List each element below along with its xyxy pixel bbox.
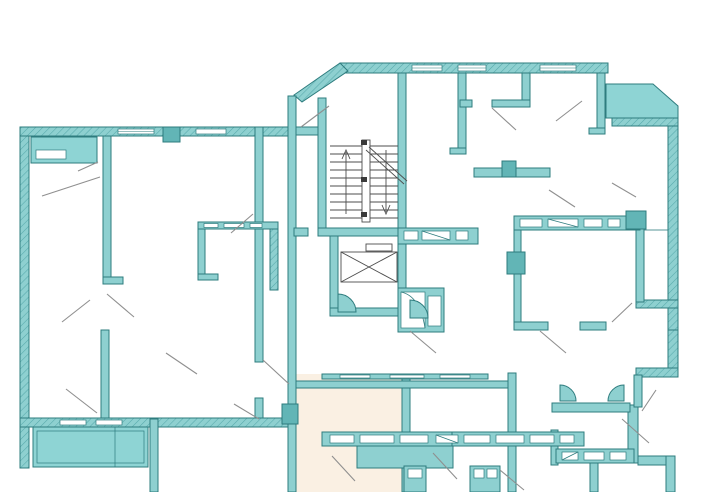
door-swing: [62, 300, 90, 322]
balcony-top-right: [606, 84, 678, 118]
door-swing: [66, 389, 97, 413]
column: [502, 161, 516, 177]
wall-corridor-bottom: [296, 381, 508, 388]
wall-int-left-b: [101, 330, 109, 418]
door-swing: [410, 331, 436, 353]
door-swing: [42, 177, 100, 196]
wall-foot-a: [103, 277, 123, 284]
wall-int-left-a: [103, 136, 111, 284]
wall-int-r2-stub: [460, 100, 472, 107]
wall-stair-left: [318, 98, 326, 230]
door-leaf: [608, 385, 624, 401]
wall-foot-b: [450, 148, 466, 154]
wall-closet-foot: [198, 274, 218, 280]
wall-int-r4: [597, 73, 605, 133]
window-band-top-right: [612, 118, 678, 126]
wall-elevator-left: [330, 236, 338, 316]
wall-int-left-d: [255, 398, 263, 418]
column: [507, 252, 525, 274]
wall-lobby-stub: [294, 228, 308, 236]
wall-exterior-right: [668, 118, 678, 330]
wall-exterior-top-left: [20, 127, 292, 136]
column: [163, 127, 180, 142]
door-swing: [166, 353, 197, 374]
wall-br-vert-b: [666, 456, 675, 492]
balcony-window-slot: [36, 150, 66, 159]
door-swing: [612, 303, 632, 322]
wall-foot-c: [589, 128, 605, 134]
wall-bottom-left-a: [20, 418, 160, 427]
floor-plan-canvas: [0, 0, 711, 492]
door-swing: [492, 108, 516, 130]
wall-int-r1: [522, 73, 530, 103]
door-leaf: [338, 294, 356, 312]
staircase: [330, 140, 407, 222]
balcony-bottom-left: [33, 427, 148, 467]
door-swing: [642, 390, 656, 411]
wall-stair-bottom: [318, 228, 406, 236]
door-swing: [540, 331, 566, 353]
wall-stair-stub: [296, 127, 318, 135]
wall-bottom-vert: [150, 419, 158, 492]
wall-central: [288, 96, 296, 492]
wall-bottom-left-b: [158, 418, 288, 427]
band-core-bottom: [357, 446, 453, 468]
column: [626, 211, 646, 229]
elevator: [341, 244, 397, 282]
floor-plan: [0, 0, 711, 492]
column: [282, 404, 298, 424]
wall-br-vert-c: [590, 463, 598, 492]
elevator-door: [366, 244, 392, 251]
wall-br-horiz-b: [552, 403, 630, 412]
wall-int-r2: [492, 100, 530, 107]
door-leaf: [560, 385, 576, 401]
wall-loggia-left: [636, 224, 644, 302]
door-swing: [263, 360, 289, 384]
door-swing: [612, 183, 636, 197]
wall-entry-right: [458, 73, 466, 153]
wall-living-left: [514, 230, 521, 326]
wc-fixture: [428, 296, 441, 326]
wall-br-horiz-a: [638, 456, 668, 465]
door-swing: [556, 101, 582, 121]
wall-closet-left: [198, 229, 205, 279]
wall-living-bottom-b: [580, 322, 606, 330]
wall-closet-right: [270, 222, 278, 290]
wall-chamfer-entrance: [294, 63, 348, 102]
door-swing: [549, 190, 575, 207]
loggia-right: [644, 230, 668, 300]
wall-living-bottom-a: [514, 322, 548, 330]
wall-stair-right: [398, 73, 406, 323]
wall-int-left-c: [255, 127, 263, 362]
door-swing: [107, 294, 134, 317]
wall-br-vert-e: [634, 375, 642, 407]
